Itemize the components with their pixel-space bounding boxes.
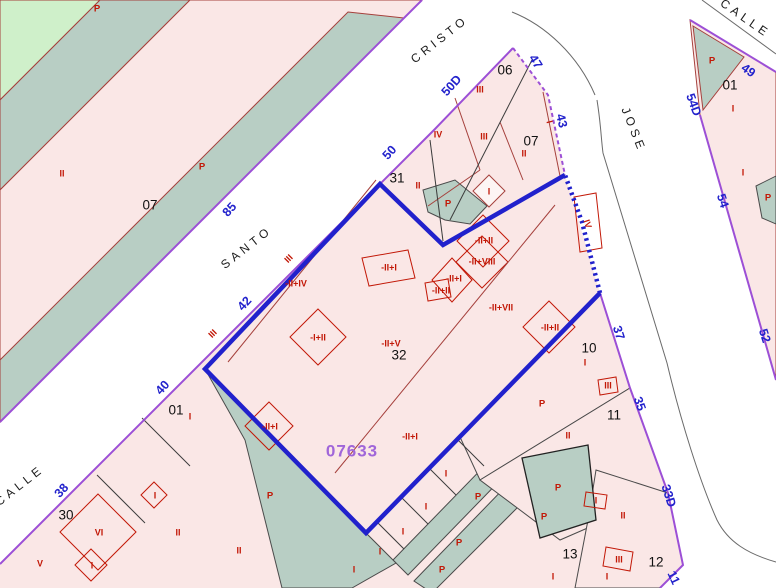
parcel-number-label: 11 [607,408,621,423]
patio-mark-label: P [541,512,548,523]
construction-mark-label: II [565,430,570,440]
construction-mark-label: I [595,495,598,505]
patio-mark-label: P [475,492,482,503]
construction-mark-label: I [445,468,448,478]
cadastral-reference: 07633 [326,441,378,460]
construction-mark-label: I [584,357,587,367]
patio-mark-label: P [709,56,716,67]
street-name-label: JOSE [618,105,649,154]
street-number-label: 50 [380,143,400,163]
construction-mark-label: -II+I [381,262,397,272]
construction-mark-label: -II+II [475,235,493,245]
parcel-number-label: 31 [389,171,404,186]
parcel-number-label: 30 [58,508,73,523]
parcel-number-label: 13 [562,547,577,562]
parcel-number-label: 01 [722,78,737,93]
construction-mark-label: -II+VIII [469,256,496,266]
street-number-label: 85 [220,200,240,220]
construction-mark-label: -II+I [402,431,418,441]
patio-mark-label: P [445,199,452,210]
parcel-number-label: 10 [581,341,596,356]
street-number-label: 42 [235,294,255,314]
construction-mark-label: I [154,490,157,500]
cadastral-map: 07633 CRISTOSANTOCALLECALLEJOSE 855050D4… [0,0,776,588]
construction-mark-label: II [620,510,625,520]
construction-mark-label: II [236,545,241,555]
construction-mark-label: II [521,148,526,158]
construction-mark-label: III [604,380,612,390]
construction-mark-label: I [425,501,428,511]
construction-mark-label: I [189,411,192,421]
construction-mark-label: I [402,526,405,536]
construction-mark-label: I [353,564,356,574]
patio-mark-label: P [765,193,772,204]
construction-mark-label: I [379,546,382,556]
construction-mark-label: II [415,180,420,190]
street-number-label: 47 [526,52,545,71]
parcel-number-label: 32 [391,348,406,363]
construction-mark-label: I [606,571,609,581]
street-name-label: CRISTO [408,13,471,67]
patio-mark-label: P [539,399,546,410]
construction-mark-label: -II+I [262,421,278,431]
parcel-number-label: 01 [168,403,183,418]
construction-mark-label: III [476,84,484,94]
construction-mark-label: -II+VII [489,302,513,312]
patio-mark-label: P [199,162,206,173]
construction-mark-label: II [59,168,64,178]
patio-mark-label: P [267,491,274,502]
patio-mark-label: P [456,538,463,549]
construction-mark-label: VI [95,527,104,537]
patio-mark-label: P [555,483,562,494]
patio-mark-label: P [94,4,101,15]
construction-mark-label: I [488,186,491,196]
construction-mark-label: -II+II [541,322,559,332]
construction-mark-label: I [742,167,745,177]
patio-mark-label: P [439,565,446,576]
construction-mark-label: V [37,558,43,568]
construction-mark-label: I [552,571,555,581]
construction-mark-label: III [206,327,218,339]
construction-mark-label: -II+IV [285,278,307,288]
street-name-label: CALLE [718,0,774,41]
parcel-number-label: 12 [648,555,663,570]
cadastral-map-canvas: 07633 CRISTOSANTOCALLECALLEJOSE 855050D4… [0,0,776,588]
construction-mark-label: I [91,560,94,570]
construction-mark-label: II [175,527,180,537]
street-name-label: CALLE [0,462,47,509]
street-number-label: 50D [439,72,465,98]
construction-mark-label: I [732,103,735,113]
construction-mark-label: -II+II [432,285,450,295]
construction-mark-label: -II+I [446,273,462,283]
construction-mark-label: -II+V [381,338,400,348]
construction-mark-label: III [480,131,488,141]
street-name-label: SANTO [218,223,275,272]
parcel-number-label: 07 [523,134,538,149]
parcel-number-label: 07 [142,198,157,213]
construction-mark-label: -I+II [310,332,326,342]
construction-mark-label: III [615,554,623,564]
construction-mark-label: IV [434,129,443,139]
construction-mark-label: III [282,252,294,264]
parcel-number-label: 06 [497,63,512,78]
